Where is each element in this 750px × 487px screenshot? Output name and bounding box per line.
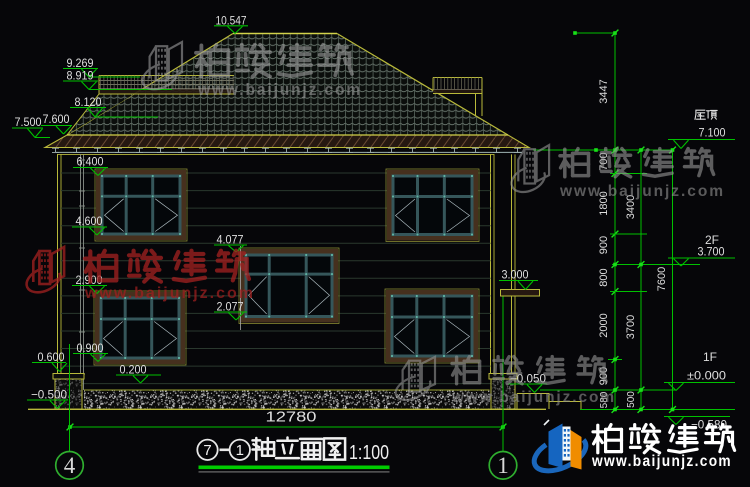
svg-text:3.000: 3.000 [502, 268, 529, 282]
svg-text:7.600: 7.600 [43, 112, 70, 126]
svg-text:0.600: 0.600 [38, 350, 65, 364]
svg-text:1: 1 [497, 453, 509, 478]
svg-text:3700: 3700 [625, 315, 637, 339]
svg-text:8.120: 8.120 [75, 95, 102, 109]
svg-text:www.baijunjz.com: www.baijunjz.com [591, 453, 732, 470]
svg-text:www.baijunjz.com: www.baijunjz.com [84, 285, 255, 302]
svg-text:1: 1 [236, 442, 244, 459]
svg-text:1F: 1F [703, 350, 717, 364]
svg-text:8.919: 8.919 [67, 69, 94, 83]
svg-text:500: 500 [626, 391, 637, 408]
svg-text:12780: 12780 [266, 410, 317, 426]
svg-text:www.baijunjz.com: www.baijunjz.com [559, 183, 725, 200]
svg-text:www.baijunjz.com: www.baijunjz.com [451, 389, 616, 406]
svg-text:3447: 3447 [598, 79, 610, 103]
svg-text:4.600: 4.600 [76, 214, 103, 228]
svg-text:6.400: 6.400 [77, 155, 104, 169]
svg-text:−0.500: −0.500 [31, 388, 67, 402]
svg-text:7600: 7600 [656, 267, 668, 291]
svg-text:0.900: 0.900 [77, 341, 104, 355]
svg-text:2000: 2000 [598, 313, 610, 337]
svg-text:4: 4 [64, 453, 76, 478]
svg-text:0.200: 0.200 [120, 363, 147, 377]
svg-text:1:100: 1:100 [349, 442, 389, 464]
svg-text:3.700: 3.700 [698, 245, 725, 259]
svg-text:7.500: 7.500 [15, 115, 42, 129]
svg-text:7.100: 7.100 [699, 126, 726, 140]
svg-text:www.baijunjz.com: www.baijunjz.com [197, 81, 362, 99]
svg-text:800: 800 [598, 268, 610, 286]
svg-text:4.077: 4.077 [217, 233, 244, 247]
svg-text:900: 900 [598, 236, 610, 254]
svg-text:±0.000: ±0.000 [687, 369, 726, 383]
svg-text:7: 7 [203, 442, 211, 459]
